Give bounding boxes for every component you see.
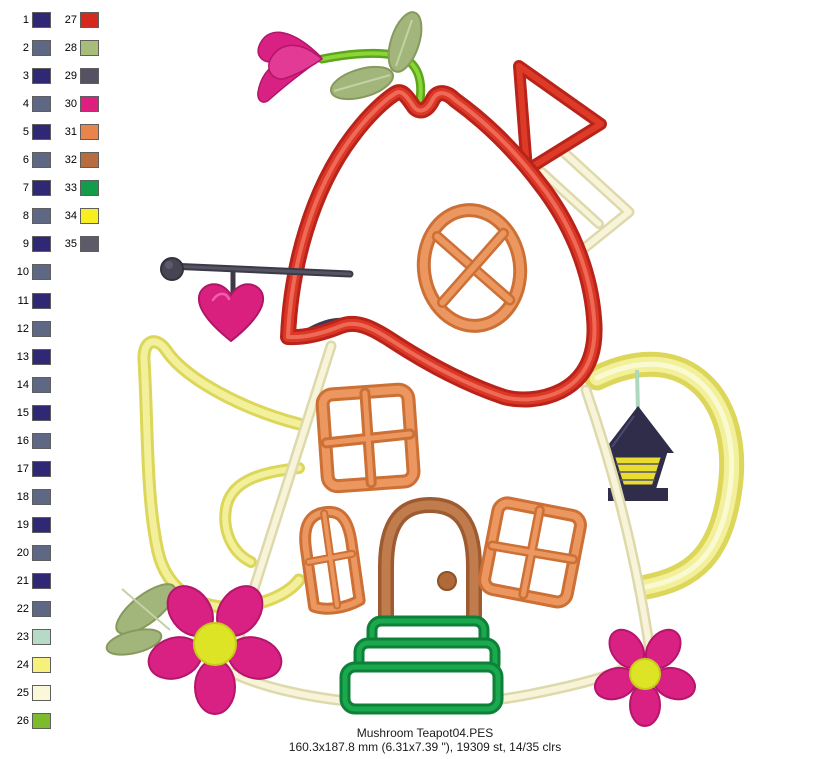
design-filename: Mushroom Teapot04.PES <box>17 726 833 740</box>
door-knob <box>438 572 456 590</box>
left-arched-window <box>301 509 360 611</box>
flag <box>519 66 601 170</box>
right-flower-center <box>630 659 660 689</box>
design-canvas <box>0 0 835 759</box>
teapot-spout <box>144 342 299 608</box>
sign-knob <box>161 258 183 280</box>
cap-round-window <box>416 204 527 332</box>
status-bar: Mushroom Teapot04.PES 160.3x187.8 mm (6.… <box>17 726 833 754</box>
right-window <box>483 501 582 603</box>
door <box>386 505 474 634</box>
lantern-cord <box>637 370 638 412</box>
tulip-flower <box>258 32 322 102</box>
stairs <box>345 621 498 709</box>
left-flower-center <box>194 623 236 665</box>
upper-window <box>322 389 414 487</box>
design-details: 160.3x187.8 mm (6.31x7.39 "), 19309 st, … <box>17 740 833 754</box>
